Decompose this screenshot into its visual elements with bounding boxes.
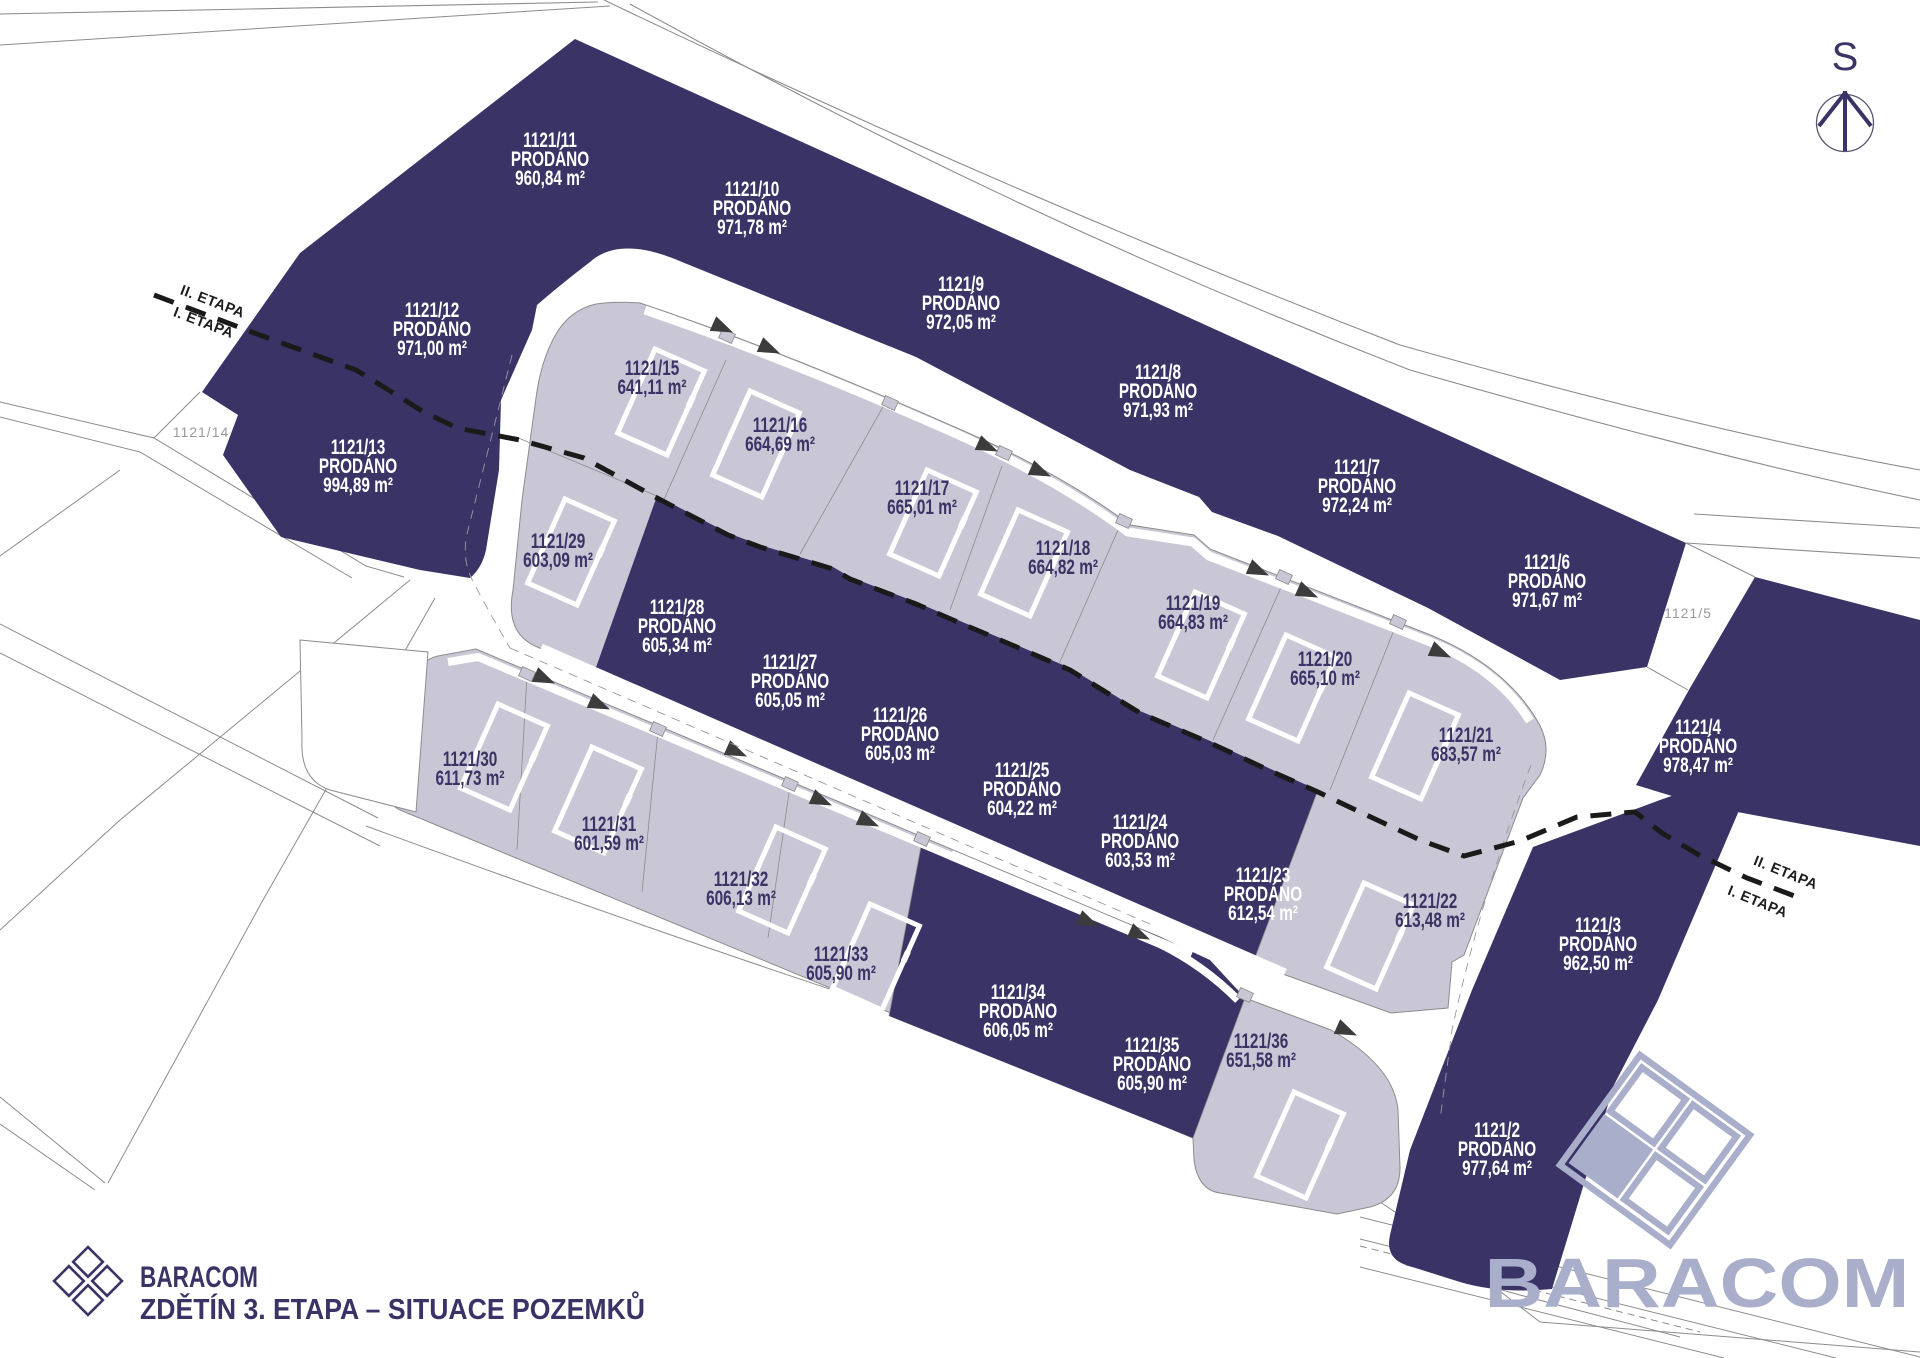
svg-text:664,69 m²: 664,69 m² — [745, 432, 815, 456]
svg-text:651,58 m²: 651,58 m² — [1226, 1048, 1296, 1072]
svg-text:605,05 m²: 605,05 m² — [755, 688, 825, 712]
svg-text:664,83 m²: 664,83 m² — [1158, 610, 1228, 634]
svg-text:S: S — [1832, 35, 1859, 79]
svg-text:1121/5: 1121/5 — [1664, 605, 1712, 621]
svg-text:606,05 m²: 606,05 m² — [983, 1018, 1053, 1042]
svg-text:977,64 m²: 977,64 m² — [1462, 1156, 1532, 1180]
svg-text:960,84 m²: 960,84 m² — [515, 166, 585, 190]
svg-text:641,11 m²: 641,11 m² — [617, 375, 686, 399]
svg-text:ZDĚTÍN 3. ETAPA – SITUACE POZE: ZDĚTÍN 3. ETAPA – SITUACE POZEMKŮ — [140, 1290, 645, 1326]
svg-text:972,24 m²: 972,24 m² — [1322, 493, 1392, 517]
svg-text:605,90 m²: 605,90 m² — [1117, 1071, 1187, 1095]
svg-text:BARACOM: BARACOM — [140, 1261, 258, 1294]
svg-text:971,78 m²: 971,78 m² — [717, 215, 787, 239]
svg-text:612,54 m²: 612,54 m² — [1228, 901, 1298, 925]
svg-text:994,89 m²: 994,89 m² — [323, 473, 393, 497]
svg-text:962,50 m²: 962,50 m² — [1563, 951, 1633, 975]
svg-text:601,59 m²: 601,59 m² — [574, 831, 644, 855]
svg-text:605,03 m²: 605,03 m² — [865, 741, 935, 765]
svg-text:605,90 m²: 605,90 m² — [806, 961, 876, 985]
svg-text:BARACOM: BARACOM — [1485, 1244, 1910, 1322]
svg-text:971,00 m²: 971,00 m² — [397, 336, 467, 360]
svg-text:605,34 m²: 605,34 m² — [642, 633, 712, 657]
svg-text:1121/14: 1121/14 — [173, 424, 230, 440]
svg-text:665,10 m²: 665,10 m² — [1290, 666, 1360, 690]
svg-text:604,22 m²: 604,22 m² — [987, 796, 1057, 820]
svg-text:971,93 m²: 971,93 m² — [1123, 398, 1193, 422]
svg-text:613,48 m²: 613,48 m² — [1395, 908, 1465, 932]
svg-text:664,82 m²: 664,82 m² — [1028, 555, 1098, 579]
svg-text:611,73 m²: 611,73 m² — [435, 766, 504, 790]
svg-text:606,13 m²: 606,13 m² — [706, 886, 776, 910]
svg-text:665,01 m²: 665,01 m² — [887, 495, 957, 519]
svg-text:603,53 m²: 603,53 m² — [1105, 848, 1175, 872]
svg-text:683,57 m²: 683,57 m² — [1431, 742, 1501, 766]
svg-text:978,47 m²: 978,47 m² — [1663, 753, 1733, 777]
svg-text:971,67 m²: 971,67 m² — [1512, 588, 1582, 612]
svg-text:603,09 m²: 603,09 m² — [523, 548, 593, 572]
svg-text:972,05 m²: 972,05 m² — [926, 310, 996, 334]
